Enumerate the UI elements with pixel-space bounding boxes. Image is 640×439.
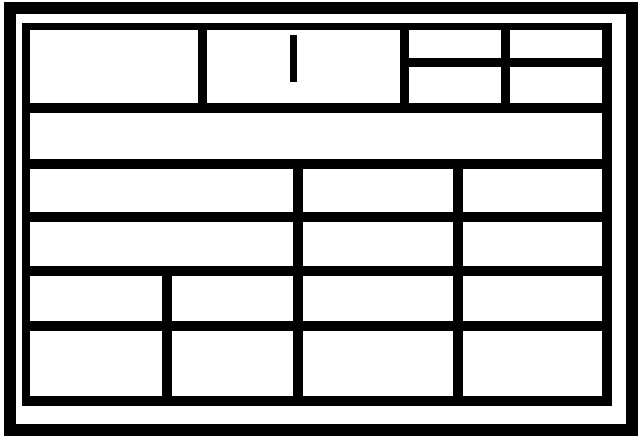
header-right-grid bbox=[409, 30, 602, 103]
row-3-cell-2 bbox=[303, 169, 453, 212]
form-sheet bbox=[22, 23, 612, 406]
header-row bbox=[30, 30, 602, 103]
row-4-cell-2 bbox=[303, 222, 453, 266]
header-middle-cell bbox=[207, 30, 400, 103]
row-6 bbox=[30, 331, 602, 396]
band-cell bbox=[30, 113, 602, 159]
row-3 bbox=[30, 169, 602, 212]
header-left-cell bbox=[30, 30, 198, 103]
header-grid-cell-top-left bbox=[409, 30, 501, 58]
header-grid-cell-bottom-left bbox=[409, 67, 501, 103]
header-grid-cell-bottom-right bbox=[510, 67, 602, 103]
row-4 bbox=[30, 222, 602, 266]
row-5-cell-2 bbox=[172, 276, 293, 321]
header-grid-cell-top-right bbox=[510, 30, 602, 58]
row-6-cell-4 bbox=[463, 331, 602, 396]
vertical-bar-mark bbox=[290, 35, 297, 82]
row-3-cell-3 bbox=[463, 169, 602, 212]
outer-frame bbox=[4, 2, 638, 436]
row-6-cell-1 bbox=[30, 331, 162, 396]
band-row bbox=[30, 113, 602, 159]
row-4-cell-3 bbox=[463, 222, 602, 266]
row-6-cell-3 bbox=[303, 331, 453, 396]
wireframe-canvas bbox=[0, 0, 640, 439]
row-5-cell-3 bbox=[303, 276, 453, 321]
row-3-cell-1 bbox=[30, 169, 293, 212]
row-5 bbox=[30, 276, 602, 321]
row-5-cell-1 bbox=[30, 276, 162, 321]
row-4-cell-1 bbox=[30, 222, 293, 266]
row-5-cell-4 bbox=[463, 276, 602, 321]
row-6-cell-2 bbox=[172, 331, 293, 396]
